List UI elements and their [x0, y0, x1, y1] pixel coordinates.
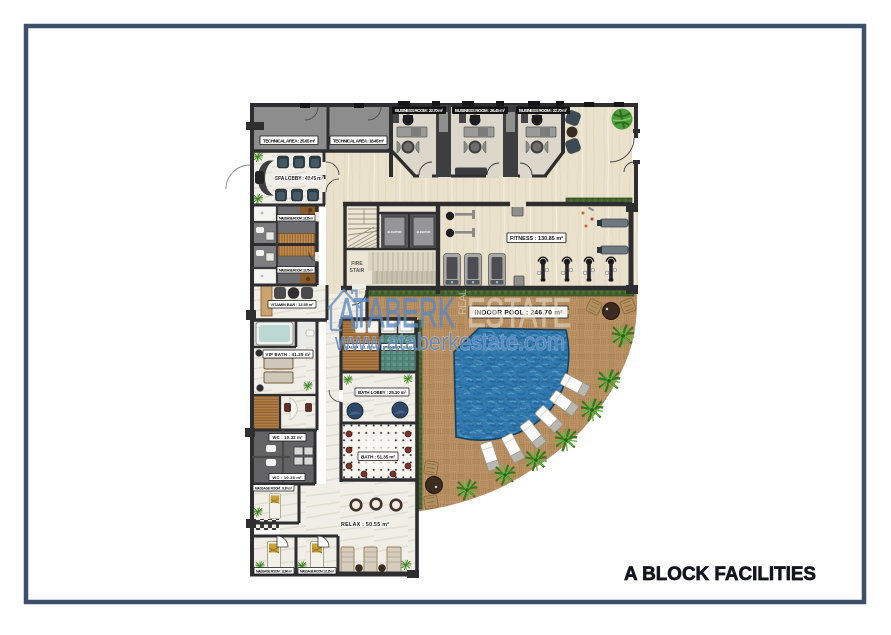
svg-text:WC : 10.32 m²: WC : 10.32 m² — [273, 435, 304, 440]
svg-text:MASSAGE ROOM : 9.30 m²: MASSAGE ROOM : 9.30 m² — [255, 486, 292, 490]
svg-text:ELEVATOR: ELEVATOR — [417, 230, 431, 234]
svg-text:MASSAGE ROOM : 12.15 m²: MASSAGE ROOM : 12.15 m² — [279, 217, 314, 221]
svg-text:BUSINESS ROOM : 22.70 m²: BUSINESS ROOM : 22.70 m² — [519, 108, 568, 113]
svg-text:TECHNICAL AREA : 25.65 m²: TECHNICAL AREA : 25.65 m² — [263, 138, 315, 143]
svg-text:VITAMIN BAR : 13.55 m²: VITAMIN BAR : 13.55 m² — [271, 302, 315, 307]
svg-text:ELEVATOR: ELEVATOR — [388, 230, 402, 234]
svg-text:RELAX : 50.55 m²: RELAX : 50.55 m² — [341, 522, 389, 528]
svg-text:FIRE: FIRE — [351, 261, 363, 267]
svg-text:SPA LOBBY : 40.45 m²: SPA LOBBY : 40.45 m² — [275, 176, 323, 182]
svg-text:VIP BATH : 41.25 m²: VIP BATH : 41.25 m² — [266, 352, 312, 357]
svg-text:MASSAGE ROOM : 12.15 m²: MASSAGE ROOM : 12.15 m² — [300, 569, 334, 573]
svg-text:BATH : 51.35 m²: BATH : 51.35 m² — [361, 454, 395, 460]
svg-text:WC : 10.35 m²: WC : 10.35 m² — [273, 475, 303, 480]
svg-text:www.ataberkestate.com: www.ataberkestate.com — [334, 329, 565, 356]
svg-text:STAIR: STAIR — [350, 268, 365, 274]
svg-text:A BLOCK FACILITIES: A BLOCK FACILITIES — [624, 564, 816, 585]
svg-text:BUSINESS ROOM : 22.70 m²: BUSINESS ROOM : 22.70 m² — [395, 108, 444, 113]
svg-text:TECHNICAL AREA : 18.45 m²: TECHNICAL AREA : 18.45 m² — [333, 138, 384, 143]
svg-text:BATH LOBBY : 25.10 m²: BATH LOBBY : 25.10 m² — [358, 390, 407, 395]
svg-text:BUSINESS ROOM : 26.45 m²: BUSINESS ROOM : 26.45 m² — [455, 108, 506, 113]
svg-text:FITNESS : 130.85 m²: FITNESS : 130.85 m² — [510, 236, 563, 242]
svg-text:MASSAGE ROOM : 12.60 m²: MASSAGE ROOM : 12.60 m² — [256, 569, 292, 573]
svg-text:MASSAGE ROOM : 12.75 m²: MASSAGE ROOM : 12.75 m² — [279, 269, 314, 273]
